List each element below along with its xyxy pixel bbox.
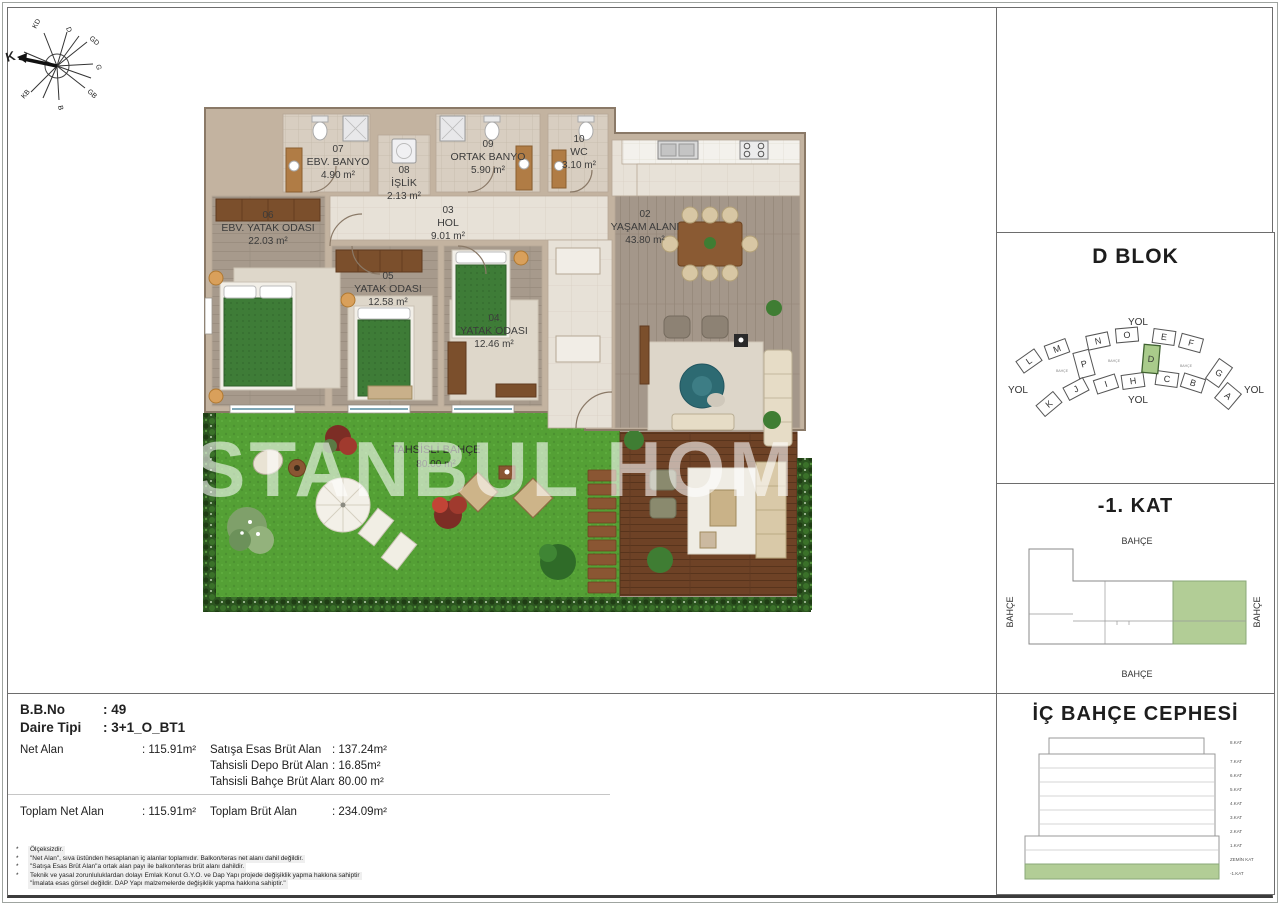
watermark: ISTANBUL HOM xyxy=(169,425,797,513)
compass-label-gd: GD xyxy=(88,35,101,47)
compass-label-k: K xyxy=(4,48,18,65)
bahce-label: Tahsisli Bahçe Brüt Alan xyxy=(210,776,333,788)
satisa-value: : 137.24m² xyxy=(332,744,387,756)
apartment: 07 EBV. BANYO 4.90 m² 08 İŞLİK 2.13 m² 0… xyxy=(205,108,805,446)
highlighted-floor xyxy=(1025,864,1219,879)
room04-area: 12.46 m² xyxy=(474,339,514,350)
footnote-text: "İmalata esas görsel değildir. DAP Yapı … xyxy=(28,880,288,889)
toplam-net-value: : 115.91m² xyxy=(142,806,196,818)
kitchen-floor xyxy=(622,140,800,164)
footnote-text: Ölçeksizdir. xyxy=(28,846,65,855)
net-alan-label: Net Alan xyxy=(20,744,63,756)
road-label-top: YOL xyxy=(1128,317,1148,328)
footnotes: * Ölçeksizdir. * "Net Alan", sıva üstünd… xyxy=(16,846,656,889)
footnote-row: * "Net Alan", sıva üstünden hesaplanan i… xyxy=(16,855,656,864)
footnote-mark xyxy=(16,880,28,889)
elevation-panel: İÇ BAHÇE CEPHESİ 8.KAT 7.KAT 6.KAT 5.KAT… xyxy=(996,693,1275,895)
footnote-mark: * xyxy=(16,855,28,864)
kat-garden-bottom: BAHÇE xyxy=(1121,669,1152,679)
site-plan-drawing: L M N O E F P D G K J I H C B A YOL YOL … xyxy=(997,233,1274,484)
compass-label-g: G xyxy=(94,64,102,71)
room02-number: 02 xyxy=(639,209,651,220)
room06-name: EBV. YATAK ODASI xyxy=(221,222,314,234)
depo-label: Tahsisli Depo Brüt Alan xyxy=(210,760,328,772)
kat-garden-top: BAHÇE xyxy=(1121,536,1152,546)
room02-area: 43.80 m² xyxy=(625,235,665,246)
room03-name: HOL xyxy=(437,217,459,229)
table-rule xyxy=(8,794,610,795)
satisa-label: Satışa Esas Brüt Alan xyxy=(210,744,321,756)
toplam-brut-value: : 234.09m² xyxy=(332,806,387,818)
floor-label-4: 4.KAT xyxy=(1230,801,1242,806)
floor-plan-sheet: TAHSİSLİ BAHÇE 80.00 m² xyxy=(0,0,1280,905)
room08-area: 2.13 m² xyxy=(387,191,422,202)
compass-label-b: B xyxy=(56,105,64,111)
room05-area: 12.58 m² xyxy=(368,297,408,308)
bahce-value: : 80.00 m² xyxy=(332,776,384,788)
room04-name: YATAK ODASI xyxy=(460,325,528,337)
room10-area: 3.10 m² xyxy=(562,160,597,171)
room03-area: 9.01 m² xyxy=(431,231,466,242)
depo-value: : 16.85m² xyxy=(332,760,381,772)
room05-number: 05 xyxy=(382,271,394,282)
room10-name: WC xyxy=(570,146,588,158)
floor-label-7: 7.KAT xyxy=(1230,759,1242,764)
room07-number: 07 xyxy=(332,144,344,155)
floor-label-6: 6.KAT xyxy=(1230,773,1242,778)
hall-floor xyxy=(330,196,608,240)
footnote-row: * Ölçeksizdir. xyxy=(16,846,656,855)
room09-name: ORTAK BANYO xyxy=(451,151,526,163)
footnote-mark: * xyxy=(16,863,28,872)
room07-name: EBV. BANYO xyxy=(307,156,370,168)
footnote-text: "Net Alan", sıva üstünden hesaplanan iç … xyxy=(28,855,305,864)
unit-info-table: B.B.No : 49 Daire Tipi : 3+1_O_BT1 Net A… xyxy=(0,694,996,894)
daire-tipi-value: : 3+1_O_BT1 xyxy=(103,720,185,735)
toplam-brut-label: Toplam Brüt Alan xyxy=(210,806,297,818)
room06-number: 06 xyxy=(262,210,274,221)
site-garden-label-2: BAHÇE xyxy=(1108,359,1121,363)
floor-label-5: 5.KAT xyxy=(1230,787,1242,792)
floor-label-3: 3.KAT xyxy=(1230,815,1242,820)
kitchen-marble-floor xyxy=(637,164,800,196)
footnote-row: "İmalata esas görsel değildir. DAP Yapı … xyxy=(16,880,656,889)
footnote-text: "Satışa Esas Brüt Alan"a ortak alan payı… xyxy=(28,863,246,872)
compass-label-kb: KB xyxy=(20,88,32,100)
road-label-bottom: YOL xyxy=(1128,395,1148,406)
hedge-right xyxy=(797,458,812,610)
block-o: O xyxy=(1123,330,1131,341)
floor-label-8: 8.KAT xyxy=(1230,740,1242,745)
islik-fixtures xyxy=(392,139,416,163)
apartment-plan-drawing: TAHSİSLİ BAHÇE 80.00 m² xyxy=(0,0,996,693)
footnote-mark: * xyxy=(16,846,28,855)
kat-garden-right: BAHÇE xyxy=(1252,596,1262,627)
site-garden-label-3: BAHÇE xyxy=(1180,364,1193,368)
elevation-drawing: 8.KAT 7.KAT 6.KAT 5.KAT 4.KAT 3.KAT 2.KA… xyxy=(997,694,1274,894)
room08-name: İŞLİK xyxy=(391,176,417,189)
compass-rose: K KD D GD G GB B KB xyxy=(4,18,102,111)
floor-label-2: 2.KAT xyxy=(1230,829,1242,834)
toplam-net-label: Toplam Net Alan xyxy=(20,806,104,818)
compass-label-kd: KD xyxy=(32,18,43,30)
daire-tipi-label: Daire Tipi xyxy=(20,720,81,735)
kat-garden-left: BAHÇE xyxy=(1005,596,1015,627)
floor-label-minus1: -1.KAT xyxy=(1230,871,1244,876)
room09-number: 09 xyxy=(482,139,494,150)
room05-name: YATAK ODASI xyxy=(354,283,422,295)
road-label-right: YOL xyxy=(1244,385,1264,396)
highlighted-unit xyxy=(1173,581,1246,644)
footnote-row: * "Satışa Esas Brüt Alan"a ortak alan pa… xyxy=(16,863,656,872)
hedge-bottom xyxy=(203,597,811,612)
room08-number: 08 xyxy=(398,165,410,176)
compass-label-gb: GB xyxy=(86,88,98,100)
floor-location-panel: -1. KAT BAHÇE BAHÇE BAHÇE BAHÇE xyxy=(996,483,1275,695)
bbno-label: B.B.No xyxy=(20,702,65,717)
block-h: H xyxy=(1129,376,1137,387)
room03-number: 03 xyxy=(442,205,454,216)
floor-location-drawing: BAHÇE BAHÇE BAHÇE BAHÇE xyxy=(997,484,1274,694)
site-plan-panel: D BLOK L xyxy=(996,232,1275,485)
bbno-value: : 49 xyxy=(103,702,126,717)
site-garden-label-1: BAHÇE xyxy=(1056,369,1069,373)
footnote-mark: * xyxy=(16,872,28,881)
room09-area: 5.90 m² xyxy=(471,165,506,176)
net-alan-value: : 115.91m² xyxy=(142,744,196,756)
room02-name: YAŞAM ALANI xyxy=(611,221,680,233)
room04-number: 04 xyxy=(488,313,500,324)
room10-number: 10 xyxy=(573,134,585,145)
floor-label-1: 1.KAT xyxy=(1230,843,1242,848)
road-label-left: YOL xyxy=(1008,385,1028,396)
compass-label-d: D xyxy=(64,26,72,33)
floor-label-zemin: ZEMİN KAT xyxy=(1230,856,1254,862)
room07-area: 4.90 m² xyxy=(321,170,356,181)
room06-area: 22.03 m² xyxy=(248,236,288,247)
